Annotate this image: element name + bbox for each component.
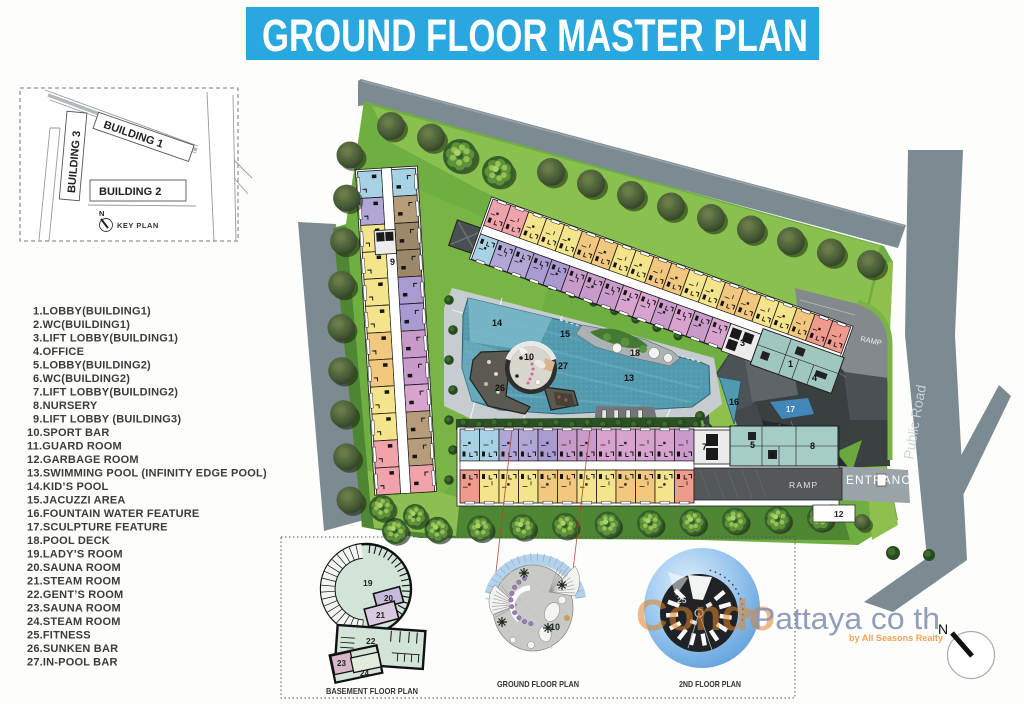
svg-text:13.SWIMMING POOL (INFINITY EDG: 13.SWIMMING POOL (INFINITY EDGE POOL) [27, 468, 267, 480]
svg-text:4.OFFICE: 4.OFFICE [33, 346, 84, 358]
svg-text:19: 19 [363, 578, 373, 588]
svg-text:14: 14 [492, 318, 502, 328]
svg-text:by All Seasons Realty: by All Seasons Realty [849, 633, 944, 644]
svg-text:N: N [938, 621, 948, 637]
svg-text:23: 23 [337, 659, 346, 668]
svg-text:12.GARBAGE ROOM: 12.GARBAGE ROOM [27, 454, 139, 466]
svg-text:13: 13 [624, 373, 634, 383]
svg-text:15: 15 [560, 329, 570, 339]
svg-text:ENTRANCE: ENTRANCE [846, 475, 920, 487]
svg-text:N: N [99, 209, 104, 218]
svg-text:GROUND FLOOR PLAN: GROUND FLOOR PLAN [497, 679, 579, 689]
svg-text:21: 21 [376, 611, 385, 620]
svg-text:16: 16 [729, 397, 739, 407]
svg-text:2.WC(BUILDING1): 2.WC(BUILDING1) [33, 319, 130, 331]
svg-text:6.WC(BUILDING2): 6.WC(BUILDING2) [33, 373, 130, 385]
svg-text:RAMP: RAMP [789, 480, 818, 490]
svg-text:26.SUNKEN BAR: 26.SUNKEN BAR [27, 643, 118, 655]
svg-text:9.LIFT LOBBY (BUILDING3): 9.LIFT LOBBY (BUILDING3) [33, 414, 181, 426]
svg-text:4: 4 [812, 373, 817, 383]
svg-text:2ND FLOOR PLAN: 2ND FLOOR PLAN [679, 679, 741, 689]
svg-text:6: 6 [770, 450, 775, 460]
svg-text:17.SCULPTURE FEATURE: 17.SCULPTURE FEATURE [27, 522, 168, 534]
svg-text:7: 7 [702, 442, 707, 452]
svg-text:20.SAUNA ROOM: 20.SAUNA ROOM [27, 562, 121, 574]
svg-text:23.SAUNA ROOM: 23.SAUNA ROOM [27, 603, 121, 615]
svg-text:27: 27 [558, 361, 568, 371]
svg-text:17: 17 [786, 405, 795, 414]
svg-text:19.LADY’S ROOM: 19.LADY’S ROOM [27, 549, 123, 561]
svg-text:25.FITNESS: 25.FITNESS [27, 630, 91, 642]
svg-text:16.FOUNTAIN WATER FEATURE: 16.FOUNTAIN WATER FEATURE [27, 508, 199, 520]
svg-text:5.LOBBY(BUILDING2): 5.LOBBY(BUILDING2) [33, 360, 151, 372]
svg-text:5: 5 [750, 440, 755, 450]
svg-text:8.NURSERY: 8.NURSERY [33, 400, 98, 412]
svg-text:8: 8 [810, 441, 815, 451]
svg-text:Pattaya co th: Pattaya co th [754, 601, 940, 636]
svg-text:GROUND FLOOR MASTER PLAN: GROUND FLOOR MASTER PLAN [262, 10, 808, 61]
svg-text:10: 10 [524, 352, 534, 362]
svg-text:KEY PLAN: KEY PLAN [117, 221, 159, 230]
svg-text:3: 3 [740, 338, 745, 348]
svg-text:15.JACUZZI AREA: 15.JACUZZI AREA [27, 495, 126, 507]
svg-text:22.GENT’S ROOM: 22.GENT’S ROOM [27, 589, 123, 601]
svg-text:21.STEAM ROOM: 21.STEAM ROOM [27, 576, 121, 588]
svg-text:18: 18 [630, 348, 640, 358]
svg-text:12: 12 [834, 509, 844, 519]
svg-text:1: 1 [788, 359, 793, 369]
svg-text:14.KID’S POOL: 14.KID’S POOL [27, 481, 109, 493]
svg-text:3.LIFT LOBBY(BUILDING1): 3.LIFT LOBBY(BUILDING1) [33, 333, 178, 345]
svg-text:27.IN-POOL BAR: 27.IN-POOL BAR [27, 657, 118, 669]
svg-text:7.LIFT LOBBY(BUILDING2): 7.LIFT LOBBY(BUILDING2) [33, 387, 178, 399]
svg-text:10.SPORT BAR: 10.SPORT BAR [27, 427, 109, 439]
svg-text:10: 10 [550, 622, 560, 632]
svg-text:22: 22 [366, 636, 376, 646]
svg-text:24: 24 [360, 669, 369, 678]
svg-text:BUILDING 2: BUILDING 2 [99, 186, 161, 198]
svg-text:26: 26 [495, 383, 505, 393]
svg-text:24.STEAM ROOM: 24.STEAM ROOM [27, 616, 121, 628]
svg-text:18.POOL DECK: 18.POOL DECK [27, 535, 110, 547]
svg-text:9: 9 [390, 257, 395, 267]
svg-text:BASEMENT FLOOR PLAN: BASEMENT FLOOR PLAN [326, 686, 418, 696]
svg-text:1.LOBBY(BUILDING1): 1.LOBBY(BUILDING1) [33, 306, 151, 318]
svg-text:11.GUARD ROOM: 11.GUARD ROOM [27, 441, 122, 453]
